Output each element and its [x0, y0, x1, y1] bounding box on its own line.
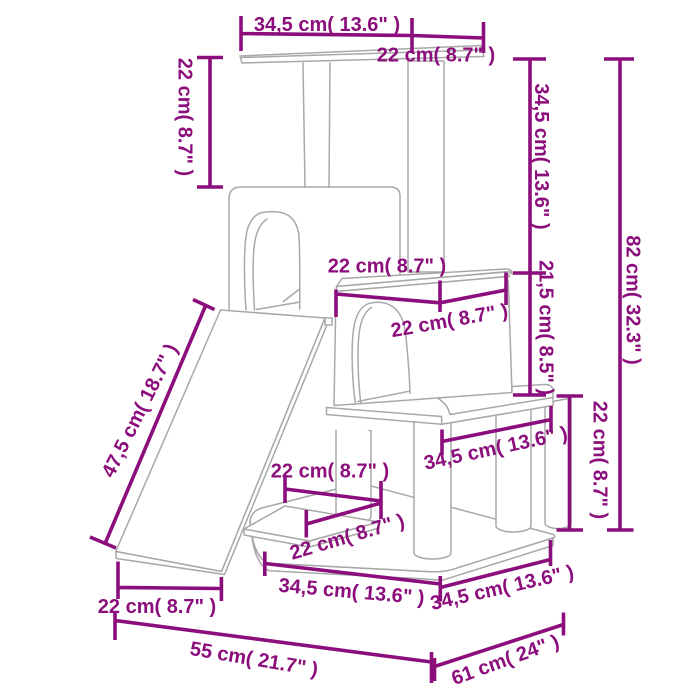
svg-text:22 cm( 8.7" ): 22 cm( 8.7" ) — [589, 401, 611, 519]
svg-text:22 cm( 8.7" ): 22 cm( 8.7" ) — [271, 461, 389, 483]
svg-text:21,5 cm( 8.5" ): 21,5 cm( 8.5" ) — [535, 260, 557, 395]
svg-text:34,5 cm( 13.6" ): 34,5 cm( 13.6" ) — [254, 14, 400, 36]
svg-text:22 cm( 8.7" ): 22 cm( 8.7" ) — [328, 256, 446, 278]
svg-text:22 cm( 8.7" ): 22 cm( 8.7" ) — [98, 596, 216, 618]
svg-text:34,5 cm( 13.6" ): 34,5 cm( 13.6" ) — [530, 83, 552, 229]
svg-text:22 cm( 8.7" ): 22 cm( 8.7" ) — [377, 45, 495, 67]
svg-text:22 cm( 8.7" ): 22 cm( 8.7" ) — [174, 58, 196, 176]
svg-text:82 cm( 32.3" ): 82 cm( 32.3" ) — [622, 235, 644, 365]
